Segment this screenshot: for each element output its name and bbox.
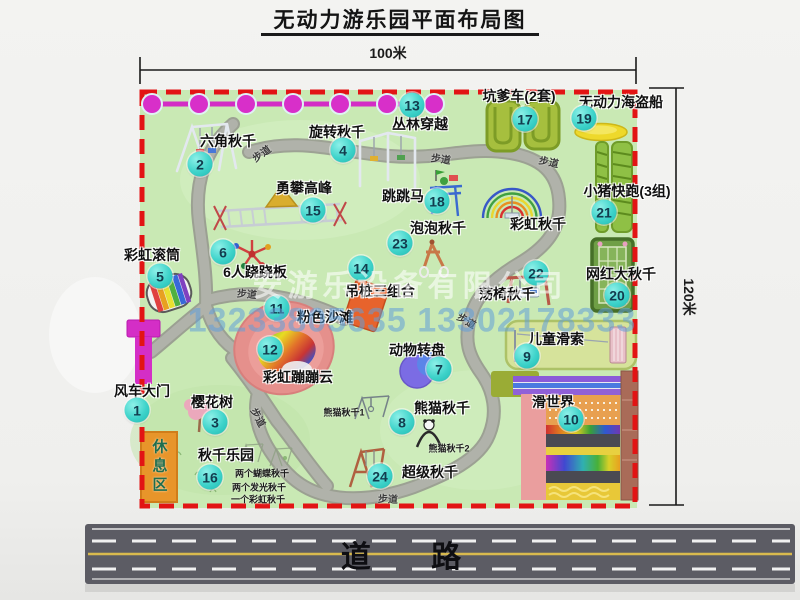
attraction-label-big-swing: 网红大秋千 (586, 264, 656, 284)
attraction-badge-pit-cars: 17 (513, 107, 538, 132)
attraction-label-rainbow-cloud: 彩虹蹦蹦云 (263, 367, 333, 387)
attraction-label-climbing-peak: 勇攀高峰 (276, 178, 332, 198)
path-label-6: 步道 (378, 490, 399, 506)
attraction-badge-hex-swing: 2 (188, 152, 213, 177)
attraction-label-bubble-swing: 泡泡秋千 (410, 218, 466, 238)
page-title: 无动力游乐园平面布局图 (274, 4, 527, 34)
screenshot-canvas: 无动力游乐园平面布局图 100米 120米 风车大门1六角秋千2樱花树3旋转秋千… (0, 0, 800, 600)
attraction-badge-panda-swing: 8 (390, 410, 415, 435)
attraction-badge-climbing-peak: 15 (301, 198, 326, 223)
attraction-label-jungle-crossing: 丛林穿越 (392, 114, 448, 134)
watermark-company: 安游乐设备有限公司 (253, 261, 568, 305)
rest-area-label: 休息区 (149, 439, 170, 496)
note-4: 一个彩虹秋千 (231, 493, 285, 506)
attraction-badge-rotating-swing: 4 (331, 138, 356, 163)
dimension-width-label: 100米 (369, 43, 406, 63)
attraction-badge-jungle-crossing: 13 (400, 93, 425, 118)
attraction-label-rainbow-roller: 彩虹滚筒 (124, 245, 180, 265)
attraction-badge-jumping-horse: 18 (425, 189, 450, 214)
watermark-phone: 13233805635 13302178333 (188, 302, 636, 341)
attraction-badge-cherry-tree: 3 (203, 410, 228, 435)
attraction-label-pit-cars: 坑爹车(2套) (482, 86, 555, 106)
attraction-label-rainbow-swing: 彩虹秋千 (510, 214, 566, 234)
path-label-5: 步道 (248, 405, 271, 430)
title-underline (261, 33, 539, 36)
path-label-1: 步道 (430, 149, 452, 167)
attraction-badge-kids-zipline: 9 (515, 344, 540, 369)
attraction-badge-rainbow-roller: 5 (148, 264, 173, 289)
attraction-label-hex-swing: 六角秋千 (200, 131, 256, 151)
note-0: 熊猫秋千1 (323, 406, 364, 419)
attraction-badge-pirate-ship: 19 (572, 106, 597, 131)
attraction-label-jumping-horse: 跳跳马 (382, 186, 424, 206)
attraction-badge-swing-park: 16 (198, 465, 223, 490)
attraction-badge-six-seesaw: 6 (211, 240, 236, 265)
attraction-label-super-swing: 超级秋千 (402, 462, 458, 482)
attraction-badge-piggy-run: 21 (592, 200, 617, 225)
attraction-badge-super-swing: 24 (368, 464, 393, 489)
attraction-label-panda-swing: 熊猫秋千 (414, 398, 470, 418)
path-label-2: 步道 (538, 152, 561, 171)
attraction-label-piggy-run: 小猪快跑(3组) (583, 181, 670, 201)
note-2: 两个蝴蝶秋千 (235, 467, 289, 480)
attraction-label-swing-park: 秋千乐园 (198, 445, 254, 465)
road-label: 道 路 (341, 532, 487, 576)
dimension-height-label: 120米 (679, 278, 699, 315)
note-1: 熊猫秋千2 (428, 442, 469, 455)
attraction-badge-bubble-swing: 23 (388, 231, 413, 256)
attraction-badge-slide-world: 10 (559, 407, 584, 432)
attraction-badge-windmill-gate: 1 (125, 398, 150, 423)
attraction-badge-animal-carousel: 7 (427, 357, 452, 382)
